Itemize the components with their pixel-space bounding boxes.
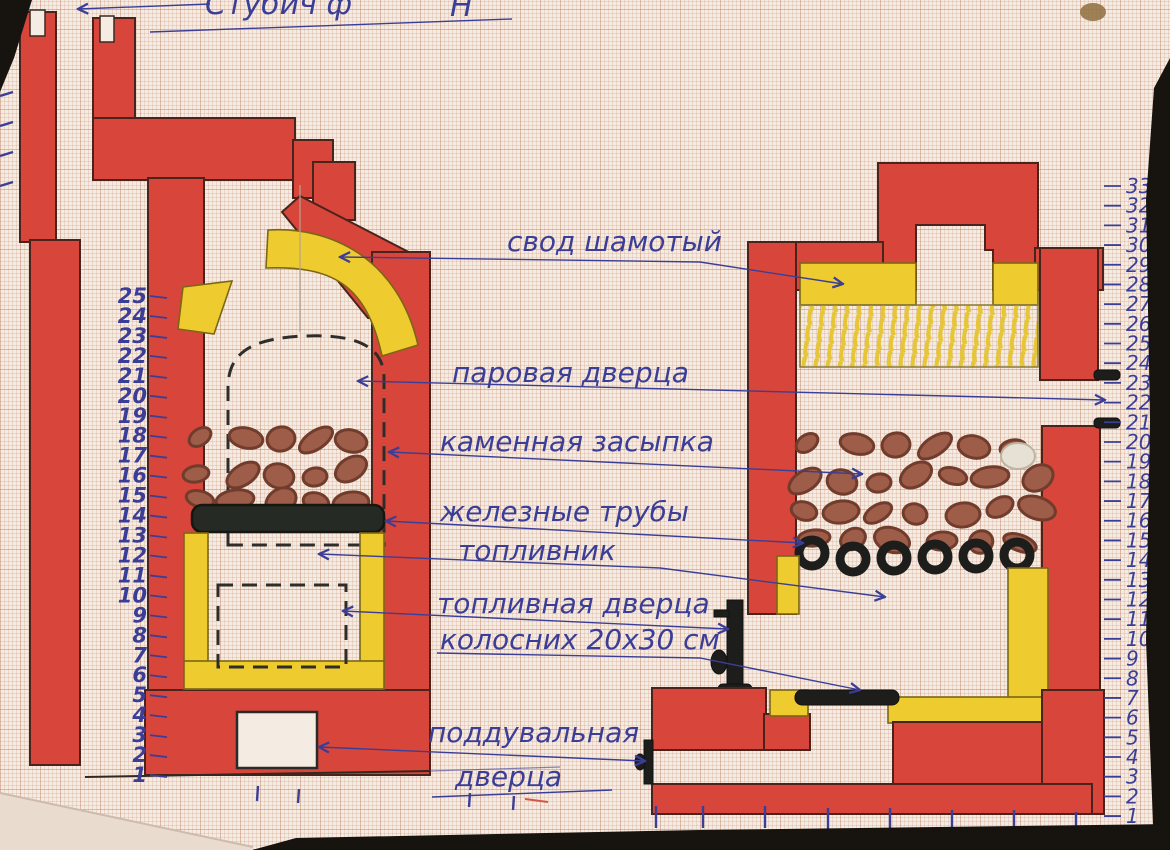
- pipe-rings: [799, 540, 1030, 572]
- chimney-notch-left: [30, 10, 45, 36]
- zheleznye-label: железные трубы: [439, 495, 689, 528]
- chimney-outer-bar: [20, 12, 56, 242]
- fireclay-hatched-band: [800, 305, 1038, 367]
- parovaya-label: паровая дверца: [452, 356, 689, 389]
- firebox-lining-bottom: [184, 661, 384, 689]
- left-ruler-number: 1: [132, 763, 147, 787]
- stone: [822, 499, 860, 525]
- stove-drawing: Стубич ф Н свод шамотый паровая дверца к…: [0, 0, 1170, 850]
- stone: [866, 472, 893, 494]
- stone: [901, 501, 930, 527]
- pipe-ring: [1004, 542, 1030, 568]
- pipe-ring: [963, 543, 989, 569]
- toplivnaya-label: топливная дверца: [437, 587, 710, 620]
- stone-highlight: [1001, 443, 1035, 469]
- ash-door-opening: [237, 712, 317, 768]
- stone: [983, 492, 1016, 521]
- lining-right-strip: [1008, 568, 1048, 700]
- bottom-block-step: [764, 714, 810, 750]
- edge-shadow-right: [1146, 58, 1170, 850]
- pipe-ring: [922, 544, 948, 570]
- fuel-door-hinge: [714, 610, 729, 617]
- kamennaya-label: каменная засыпка: [440, 425, 714, 458]
- stone: [331, 451, 371, 488]
- fireclay-band-right: [993, 263, 1038, 305]
- stone: [838, 431, 875, 458]
- toplivnik-label: топливник: [458, 534, 616, 567]
- left-outer-wall: [30, 240, 80, 765]
- stone: [970, 464, 1010, 489]
- stone: [295, 422, 337, 458]
- podduvalnaya-label-1: поддувальная: [428, 716, 639, 749]
- stone: [896, 457, 936, 494]
- top-note-left: Стубич ф: [205, 0, 352, 22]
- top-note-arrow: [78, 4, 210, 9]
- right-stove: [635, 163, 1120, 814]
- right-ruler: 3332313029282726252423222120191817161514…: [1104, 174, 1152, 828]
- podduvalnaya-label-2: дверца: [454, 760, 562, 793]
- right-door-hinge-top: [1094, 370, 1120, 380]
- top-note-right: Н: [450, 0, 473, 24]
- bottom-block-left: [652, 688, 766, 750]
- pipe-ring: [881, 545, 907, 571]
- stone: [880, 431, 912, 460]
- fireclay-band-left: [800, 263, 916, 305]
- stone: [937, 465, 968, 488]
- kolosnik-label: колосних 20х30 см: [440, 623, 720, 656]
- stone: [265, 425, 297, 454]
- stone: [914, 428, 956, 464]
- bottom-block-right: [893, 722, 1053, 784]
- scanned-notebook-page: Стубич ф Н свод шамотый паровая дверца к…: [0, 0, 1170, 850]
- right-wall-lower: [1042, 426, 1100, 692]
- stone: [333, 427, 369, 456]
- pipe-ring: [840, 546, 866, 572]
- top-band: [93, 118, 295, 180]
- stone: [861, 499, 895, 528]
- right-wall-upper: [1040, 248, 1098, 380]
- stone: [302, 466, 329, 488]
- ash-door-knob: [635, 754, 645, 770]
- stone: [227, 425, 264, 452]
- left-stove: [20, 10, 560, 777]
- red-dash: [525, 799, 548, 802]
- iron-pipes-bar: [192, 505, 384, 532]
- stone: [956, 433, 992, 462]
- stone: [262, 461, 297, 492]
- stone: [945, 501, 981, 528]
- ink-smudge: [1080, 3, 1106, 21]
- fuel-door-dashed-outline: [218, 585, 346, 667]
- edge-shadow-bottom: [252, 824, 1170, 850]
- kolosnik-line: [437, 653, 860, 690]
- stone: [825, 467, 860, 498]
- grate-bar: [795, 690, 899, 705]
- pipe-ring: [799, 540, 825, 566]
- lining-bottom-strip: [888, 697, 1050, 723]
- chimney-notch-right: [100, 16, 114, 42]
- bottom-strip: [652, 784, 1092, 814]
- fireclay-wedge: [178, 281, 232, 334]
- svod-label: свод шамотый: [507, 225, 722, 258]
